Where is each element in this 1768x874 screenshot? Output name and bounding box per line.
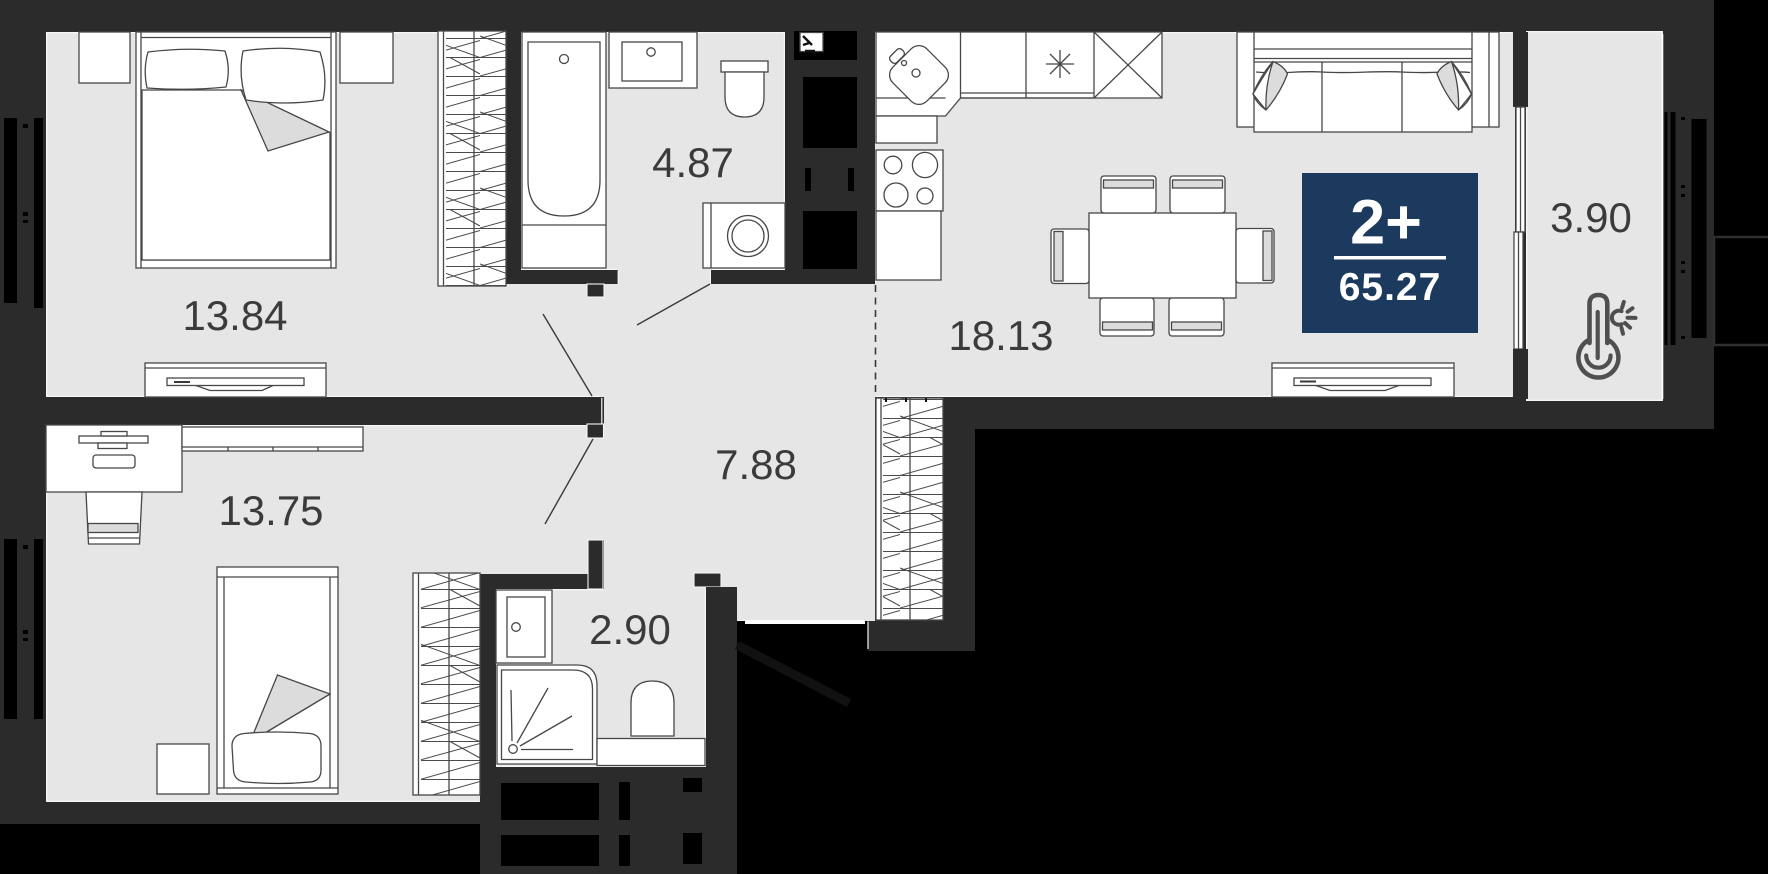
svg-text:13.84: 13.84: [182, 292, 287, 339]
svg-text:2.90: 2.90: [589, 606, 671, 653]
svg-text:3.90: 3.90: [1550, 194, 1632, 241]
svg-text:13.75: 13.75: [218, 487, 323, 534]
svg-text:7.88: 7.88: [715, 441, 797, 488]
svg-text:65.27: 65.27: [1339, 266, 1442, 309]
svg-text:18.13: 18.13: [948, 312, 1053, 359]
svg-text:2+: 2+: [1350, 188, 1422, 258]
svg-text:4.87: 4.87: [652, 139, 734, 186]
